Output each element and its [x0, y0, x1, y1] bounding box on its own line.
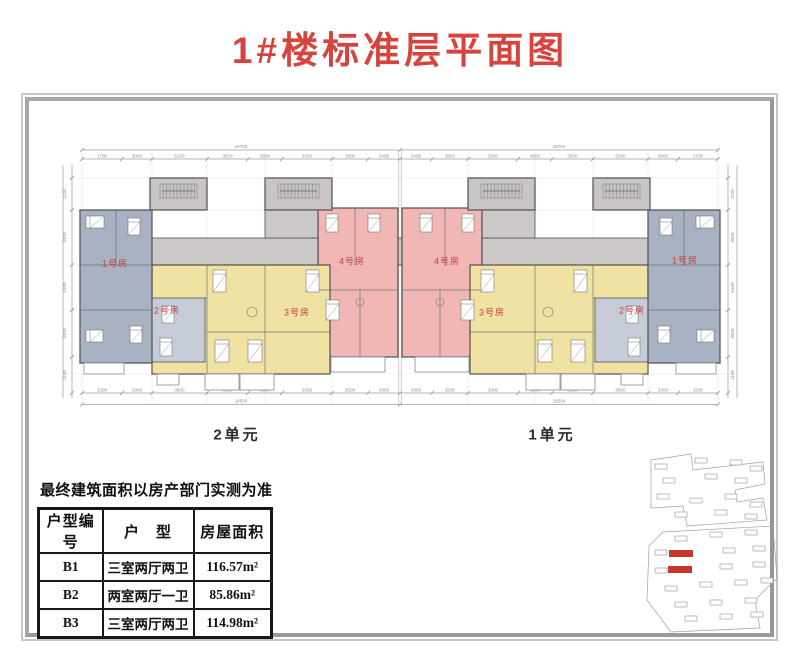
col-header-unit-code: 户型编号 [39, 509, 103, 554]
area-table: 户型编号 户 型 房屋面积 B1 三室两厅两卫 116.57m² B2 两室两厅… [37, 507, 273, 639]
unit-type: 三室两厅两卫 [103, 609, 194, 638]
unit-code: B1 [39, 553, 103, 581]
unit-type: 两室两厅一卫 [103, 581, 194, 609]
room-label-4: 4号房 [339, 255, 365, 268]
section-label-unit2: 2单元 [213, 424, 260, 445]
table-row: B3 三室两厅两卫 114.98m² [39, 609, 272, 638]
room-label-1b: 1号房 [672, 254, 698, 267]
col-header-unit-area: 房屋面积 [194, 509, 272, 554]
room-label-2: 2号房 [154, 304, 180, 317]
table-row: B2 两室两厅一卫 85.86m² [39, 581, 272, 609]
room-label-3b: 3号房 [479, 306, 505, 319]
disclaimer-note: 最终建筑面积以房产部门实测为准 [40, 479, 273, 500]
unit-area: 85.86m² [194, 581, 272, 609]
room-label-3: 3号房 [284, 306, 310, 319]
table-header-row: 户型编号 户 型 房屋面积 [39, 509, 272, 554]
table-row: B1 三室两厅两卫 116.57m² [39, 553, 272, 581]
room-label-4b: 4号房 [434, 255, 460, 268]
room-label-1: 1号房 [102, 257, 128, 270]
unit-code: B2 [39, 581, 103, 609]
section-label-unit1: 1单元 [528, 424, 575, 445]
room-label-2b: 2号房 [619, 304, 645, 317]
unit-type: 三室两厅两卫 [103, 553, 194, 581]
unit-code: B3 [39, 609, 103, 638]
unit-area: 116.57m² [194, 553, 272, 581]
unit-area: 114.98m² [194, 609, 272, 638]
col-header-unit-type: 户 型 [103, 509, 194, 554]
page-title: 1#楼标准层平面图 [0, 20, 800, 74]
